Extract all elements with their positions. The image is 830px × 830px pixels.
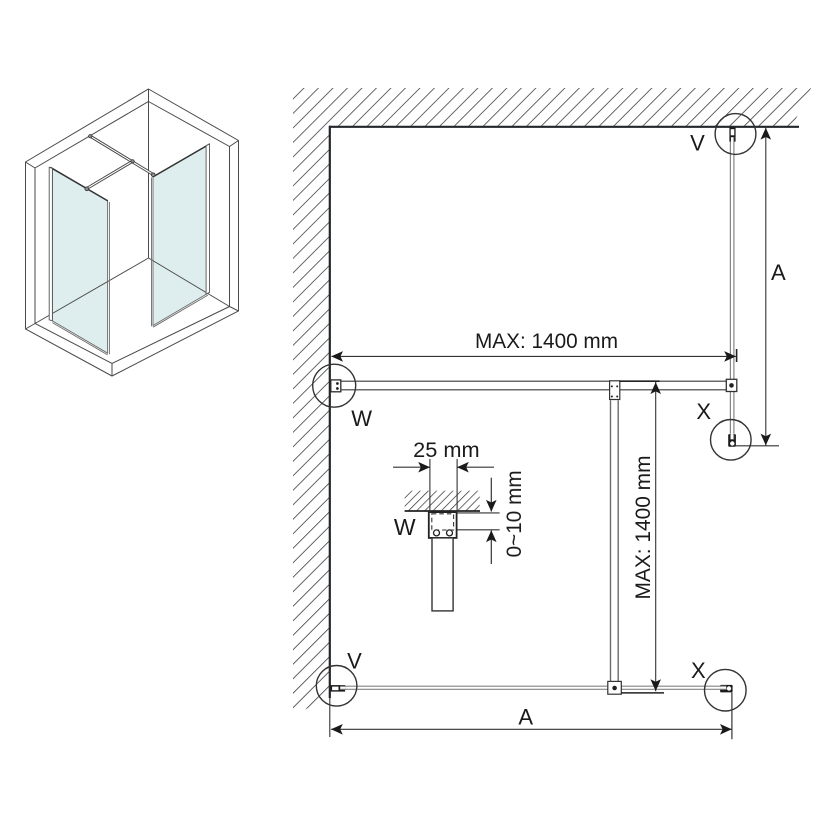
svg-text:V: V: [690, 131, 705, 156]
svg-text:X: X: [691, 658, 706, 683]
svg-text:MAX: 1400 mm: MAX: 1400 mm: [631, 456, 655, 600]
svg-text:X: X: [696, 399, 711, 424]
svg-text:V: V: [347, 649, 362, 674]
svg-text:0~10 mm: 0~10 mm: [503, 470, 526, 557]
svg-text:A: A: [771, 260, 786, 285]
svg-text:MAX: 1400 mm: MAX: 1400 mm: [475, 329, 618, 353]
svg-text:25 mm: 25 mm: [413, 438, 480, 462]
svg-text:A: A: [518, 704, 533, 729]
svg-text:W: W: [351, 406, 372, 431]
svg-text:W: W: [394, 514, 416, 540]
